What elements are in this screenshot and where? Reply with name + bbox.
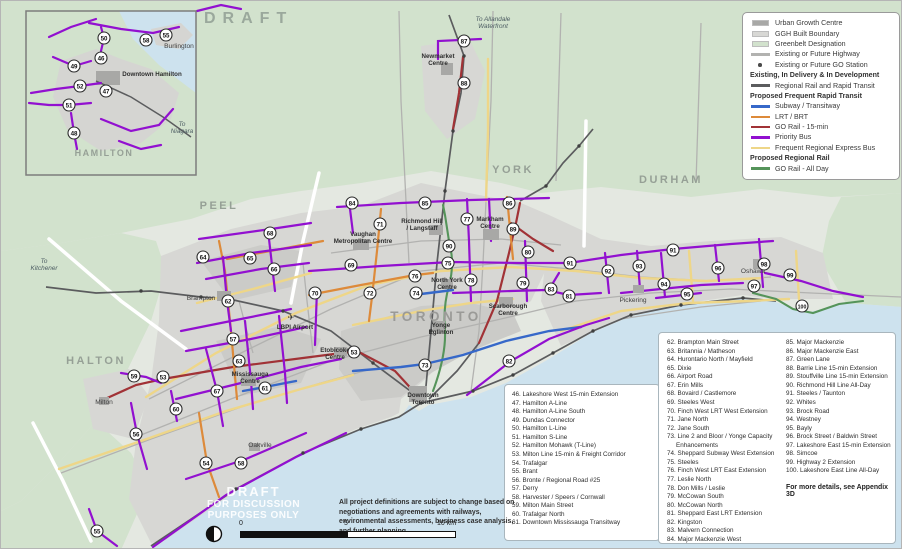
- map-label: Burlington: [164, 43, 194, 50]
- project-list-box-1: 46. Lakeshore West 15-min Extension47. H…: [504, 384, 660, 541]
- svg-text:66: 66: [271, 266, 278, 273]
- project-marker-81[interactable]: 81: [563, 290, 575, 302]
- project-marker-82[interactable]: 82: [503, 355, 515, 367]
- svg-text:88: 88: [461, 80, 468, 87]
- project-marker-96[interactable]: 96: [712, 262, 724, 274]
- map-legend: Urban Growth CentreGGH Built BoundaryGre…: [742, 12, 900, 180]
- legend-label: Urban Growth Centre: [775, 19, 842, 27]
- legend-row: Greenbelt Designation: [750, 39, 893, 49]
- project-marker-79[interactable]: 79: [517, 277, 529, 289]
- svg-text:58: 58: [143, 37, 150, 44]
- svg-text:70: 70: [312, 290, 319, 297]
- legend-key-dot: [750, 63, 770, 67]
- svg-text:48: 48: [71, 130, 78, 137]
- svg-text:86: 86: [506, 200, 513, 207]
- project-marker-49[interactable]: 49: [68, 60, 80, 72]
- project-marker-83[interactable]: 83: [545, 283, 557, 295]
- map-label: Downtown Hamilton: [122, 71, 182, 78]
- svg-text:47: 47: [103, 88, 110, 95]
- legend-label: Existing or Future GO Station: [775, 61, 868, 69]
- list-item: 48. Hamilton A-Line South: [512, 408, 655, 417]
- legend-label: Priority Bus: [775, 133, 811, 141]
- map-label: YORK: [492, 164, 534, 176]
- map-label: ✈: [288, 313, 295, 322]
- svg-text:81: 81: [566, 293, 573, 300]
- project-list-box-2: 62. Brampton Main Street63. Britannia / …: [658, 332, 896, 544]
- svg-text:68: 68: [267, 230, 274, 237]
- svg-text:74: 74: [413, 290, 420, 297]
- project-marker-86[interactable]: 86: [503, 197, 515, 209]
- list-item: 50. Hamilton L-Line: [512, 425, 655, 434]
- project-list-85-100: 85. Major Mackenzie86. Major Mackenzie E…: [786, 339, 891, 539]
- list-item: 89. Stouffville Line 15-min Extension: [786, 373, 891, 382]
- legend-symbol: [752, 41, 769, 47]
- project-marker-66[interactable]: 66: [268, 263, 280, 275]
- north-arrow-icon: [205, 525, 223, 543]
- svg-text:100: 100: [798, 304, 807, 310]
- legend-symbol: [752, 31, 769, 37]
- svg-text:55: 55: [163, 32, 170, 39]
- legend-section-header: Proposed Regional Rail: [750, 153, 893, 163]
- list-item: 65. Dixie: [667, 365, 781, 374]
- svg-text:53: 53: [160, 374, 167, 381]
- legend-row: GGH Built Boundary: [750, 28, 893, 38]
- list-item: 86. Major Mackenzie East: [786, 348, 891, 357]
- project-marker-76[interactable]: 76: [409, 270, 421, 282]
- legend-key-line: [750, 116, 770, 118]
- legend-symbol: [751, 53, 770, 55]
- svg-text:96: 96: [715, 265, 722, 272]
- legend-key-swatch: [750, 41, 770, 47]
- list-item: 96. Brock Street / Baldwin Street: [786, 433, 891, 442]
- more-details-note: For more details, see Appendix 3D: [786, 484, 891, 498]
- project-marker-99[interactable]: 99: [784, 269, 796, 281]
- legend-label: GO Rail - 15-min: [775, 123, 828, 131]
- scale-bar-group: 0 5 10 km: [197, 517, 467, 547]
- list-item: 73. Line 2 and Bloor / Yonge Capacity En…: [667, 433, 781, 450]
- project-marker-92[interactable]: 92: [602, 265, 614, 277]
- legend-symbol: [751, 126, 770, 128]
- project-marker-71[interactable]: 71: [374, 218, 386, 230]
- legend-section-header: Existing, In Delivery & In Development: [750, 70, 893, 80]
- scale-bar: [240, 531, 456, 538]
- map-label: Milton: [95, 399, 113, 406]
- legend-key-line: [750, 136, 770, 138]
- list-item: 57. Derry: [512, 485, 655, 494]
- list-item: 49. Dundas Connector: [512, 417, 655, 426]
- project-marker-64[interactable]: 64: [197, 251, 209, 263]
- svg-text:83: 83: [548, 286, 555, 293]
- project-list-46-61: 46. Lakeshore West 15-min Extension47. H…: [512, 391, 655, 528]
- legend-row: Subway / Transitway: [750, 101, 893, 111]
- project-marker-55[interactable]: 55: [91, 525, 103, 537]
- svg-text:93: 93: [636, 263, 643, 270]
- svg-text:53: 53: [351, 349, 358, 356]
- project-marker-90[interactable]: 90: [443, 240, 455, 252]
- draft-label: DRAFT: [204, 10, 293, 28]
- map-label: Brampton: [187, 295, 216, 302]
- project-marker-89[interactable]: 89: [507, 223, 519, 235]
- list-item: 71. Jane North: [667, 416, 781, 425]
- project-marker-56[interactable]: 56: [130, 428, 142, 440]
- project-marker-65[interactable]: 65: [244, 252, 256, 264]
- map-label: Pickering: [619, 297, 646, 304]
- list-item: 77. Leslie North: [667, 476, 781, 485]
- project-marker-48[interactable]: 48: [68, 127, 80, 139]
- legend-label: Greenbelt Designation: [775, 40, 846, 48]
- legend-row: Regional Rail and Rapid Transit: [750, 80, 893, 90]
- svg-text:98: 98: [761, 261, 768, 268]
- svg-text:59: 59: [131, 373, 138, 380]
- svg-text:91: 91: [670, 247, 677, 254]
- svg-text:63: 63: [236, 358, 243, 365]
- project-marker-63[interactable]: 63: [233, 355, 245, 367]
- svg-text:61: 61: [262, 385, 269, 392]
- map-label: YongeEglinton: [429, 322, 454, 336]
- svg-text:64: 64: [200, 254, 207, 261]
- legend-symbol: [751, 116, 770, 118]
- list-item: 46. Lakeshore West 15-min Extension: [512, 391, 655, 400]
- list-item: 90. Richmond Hill Line All-Day: [786, 382, 891, 391]
- project-marker-91[interactable]: 91: [667, 244, 679, 256]
- svg-text:84: 84: [349, 200, 356, 207]
- legend-header-text: Proposed Frequent Rapid Transit: [750, 92, 862, 100]
- svg-text:71: 71: [377, 221, 384, 228]
- list-item: 70. Finch West LRT West Extension: [667, 408, 781, 417]
- svg-text:85: 85: [422, 200, 429, 207]
- list-item: 88. Barrie Line 15-min Extension: [786, 365, 891, 374]
- project-marker-85[interactable]: 85: [419, 197, 431, 209]
- transit-map-page: PEELYORKDURHAMHALTONTORONTOHAMILTONTo Al…: [0, 0, 902, 549]
- svg-text:97: 97: [751, 283, 758, 290]
- svg-text:76: 76: [412, 273, 419, 280]
- svg-text:46: 46: [98, 55, 105, 62]
- svg-text:99: 99: [787, 272, 794, 279]
- project-list-62-84: 62. Brampton Main Street63. Britannia / …: [667, 339, 781, 539]
- list-item: 94. Westney: [786, 416, 891, 425]
- list-item: 67. Erin Mills: [667, 382, 781, 391]
- list-item: 53. Milton Line 15-min & Freight Corrido…: [512, 451, 655, 460]
- list-item: 59. Milton Main Street: [512, 502, 655, 511]
- map-label: DowntownToronto: [407, 392, 438, 406]
- project-marker-69[interactable]: 69: [345, 259, 357, 271]
- project-marker-97[interactable]: 97: [748, 280, 760, 292]
- legend-row: Existing or Future Highway: [750, 49, 893, 59]
- scale-labels: 0 5 10 km: [239, 520, 461, 529]
- list-item: 87. Green Lane: [786, 356, 891, 365]
- svg-text:94: 94: [661, 281, 668, 288]
- project-marker-70[interactable]: 70: [309, 287, 321, 299]
- project-marker-78[interactable]: 78: [465, 274, 477, 286]
- list-item: 92. Whites: [786, 399, 891, 408]
- legend-header-text: Proposed Regional Rail: [750, 154, 830, 162]
- map-label: LBPI Airport: [277, 324, 313, 331]
- map-label: Richmond Hill/ Langstaff: [401, 218, 443, 232]
- legend-symbol: [752, 20, 769, 26]
- project-marker-74[interactable]: 74: [410, 287, 422, 299]
- legend-label: GGH Built Boundary: [775, 30, 839, 38]
- list-item: 78. Don Mills / Leslie: [667, 485, 781, 494]
- svg-text:60: 60: [173, 406, 180, 413]
- legend-label: Subway / Transitway: [775, 102, 840, 110]
- legend-label: Frequent Regional Express Bus: [775, 144, 875, 152]
- legend-symbol: [751, 136, 770, 138]
- project-marker-75[interactable]: 75: [442, 257, 454, 269]
- project-marker-67[interactable]: 67: [211, 385, 223, 397]
- project-marker-58[interactable]: 58: [140, 34, 152, 46]
- project-marker-84[interactable]: 84: [346, 197, 358, 209]
- list-item: 69. Steeles West: [667, 399, 781, 408]
- project-marker-53[interactable]: 53: [157, 371, 169, 383]
- svg-text:58: 58: [238, 460, 245, 467]
- map-label: HAMILTON: [75, 148, 134, 158]
- list-item: 83. Malvern Connection: [667, 527, 781, 536]
- legend-row: Existing or Future GO Station: [750, 60, 893, 70]
- legend-row: Priority Bus: [750, 132, 893, 142]
- list-item: 95. Bayly: [786, 425, 891, 434]
- project-marker-53[interactable]: 53: [348, 346, 360, 358]
- legend-key-line: [750, 167, 770, 169]
- legend-label: Existing or Future Highway: [775, 50, 860, 58]
- svg-text:56: 56: [133, 431, 140, 438]
- list-item: 62. Brampton Main Street: [667, 339, 781, 348]
- scale-segment-light: [348, 532, 455, 537]
- legend-row: GO Rail - All Day: [750, 163, 893, 173]
- map-label: PEEL: [200, 200, 239, 212]
- project-marker-98[interactable]: 98: [758, 258, 770, 270]
- list-item: 56. Bronte / Regional Road #25: [512, 477, 655, 486]
- scale-five: 5: [344, 520, 348, 527]
- list-item: 63. Britannia / Matheson: [667, 348, 781, 357]
- legend-key-line: [750, 126, 770, 128]
- list-item: 97. Lakeshore East 15-min Extension: [786, 442, 891, 451]
- project-marker-50[interactable]: 50: [98, 32, 110, 44]
- list-item: 74. Sheppard Subway West Extension: [667, 450, 781, 459]
- list-item: 47. Hamilton A-Line: [512, 400, 655, 409]
- svg-text:72: 72: [367, 290, 374, 297]
- list-item: 80. McCowan North: [667, 502, 781, 511]
- svg-text:54: 54: [203, 460, 210, 467]
- project-marker-59[interactable]: 59: [128, 370, 140, 382]
- svg-text:89: 89: [510, 226, 517, 233]
- svg-text:75: 75: [445, 260, 452, 267]
- project-marker-95[interactable]: 95: [681, 288, 693, 300]
- svg-text:52: 52: [77, 83, 84, 90]
- project-marker-57[interactable]: 57: [227, 333, 239, 345]
- svg-text:51: 51: [66, 102, 73, 109]
- legend-section-header: Proposed Frequent Rapid Transit: [750, 91, 893, 101]
- list-item: 54. Trafalgar: [512, 460, 655, 469]
- svg-text:62: 62: [225, 298, 232, 305]
- svg-text:78: 78: [468, 277, 475, 284]
- project-marker-46[interactable]: 46: [95, 52, 107, 64]
- project-marker-93[interactable]: 93: [633, 260, 645, 272]
- legend-symbol: [751, 147, 770, 149]
- list-item: 84. Major Mackenzie West: [667, 536, 781, 545]
- discussion-watermark: DRAFT FOR DISCUSSION PURPOSES ONLY: [191, 485, 316, 521]
- list-item: 82. Kingston: [667, 519, 781, 528]
- list-item: 72. Jane South: [667, 425, 781, 434]
- project-marker-91[interactable]: 91: [564, 257, 576, 269]
- project-marker-62[interactable]: 62: [222, 295, 234, 307]
- legend-key-line: [750, 84, 770, 86]
- legend-row: LRT / BRT: [750, 112, 893, 122]
- list-item: 55. Brant: [512, 468, 655, 477]
- svg-text:65: 65: [247, 255, 254, 262]
- legend-label: LRT / BRT: [775, 113, 808, 121]
- legend-symbol: [758, 63, 762, 67]
- list-item: 81. Sheppard East LRT Extension: [667, 510, 781, 519]
- list-item: 66. Airport Road: [667, 373, 781, 382]
- svg-text:57: 57: [230, 336, 237, 343]
- svg-text:87: 87: [461, 38, 468, 45]
- svg-text:49: 49: [71, 63, 78, 70]
- legend-symbol: [751, 105, 770, 107]
- project-marker-68[interactable]: 68: [264, 227, 276, 239]
- project-marker-77[interactable]: 77: [461, 213, 473, 225]
- project-marker-80[interactable]: 80: [522, 246, 534, 258]
- project-marker-100[interactable]: 100: [796, 300, 808, 312]
- project-marker-61[interactable]: 61: [259, 382, 271, 394]
- svg-text:82: 82: [506, 358, 513, 365]
- svg-text:69: 69: [348, 262, 355, 269]
- legend-label: Regional Rail and Rapid Transit: [775, 82, 875, 90]
- project-marker-60[interactable]: 60: [170, 403, 182, 415]
- legend-header-text: Existing, In Delivery & In Development: [750, 71, 879, 79]
- svg-text:67: 67: [214, 388, 221, 395]
- list-item: 98. Simcoe: [786, 450, 891, 459]
- list-item: 64. Hurontario North / Mayfield: [667, 356, 781, 365]
- legend-label: GO Rail - All Day: [775, 165, 829, 173]
- legend-row: GO Rail - 15-min: [750, 122, 893, 132]
- project-marker-94[interactable]: 94: [658, 278, 670, 290]
- list-item: 100. Lakeshore East Line All-Day: [786, 467, 891, 476]
- list-item: 51. Hamilton S-Line: [512, 434, 655, 443]
- svg-text:95: 95: [684, 291, 691, 298]
- watermark-line: FOR DISCUSSION: [191, 499, 316, 510]
- legend-symbol: [751, 167, 770, 169]
- list-item: 76. Finch West LRT East Extension: [667, 467, 781, 476]
- map-label: Oakville: [248, 442, 272, 449]
- project-marker-52[interactable]: 52: [74, 80, 86, 92]
- project-marker-88[interactable]: 88: [458, 77, 470, 89]
- legend-row: Frequent Regional Express Bus: [750, 143, 893, 153]
- project-marker-47[interactable]: 47: [100, 85, 112, 97]
- legend-row: Urban Growth Centre: [750, 18, 893, 28]
- list-item: 61. Downtown Mississauga Transitway: [512, 519, 655, 528]
- map-label: HALTON: [66, 355, 126, 367]
- svg-text:73: 73: [422, 362, 429, 369]
- list-item: 85. Major Mackenzie: [786, 339, 891, 348]
- legend-key-line: [750, 105, 770, 107]
- scale-ten: 10 km: [437, 520, 456, 527]
- svg-text:91: 91: [567, 260, 574, 267]
- list-item: 60. Trafalgar North: [512, 511, 655, 520]
- project-marker-72[interactable]: 72: [364, 287, 376, 299]
- list-item: 93. Brock Road: [786, 408, 891, 417]
- list-item: 75. Steeles: [667, 459, 781, 468]
- project-marker-55[interactable]: 55: [160, 29, 172, 41]
- scale-zero: 0: [239, 520, 243, 527]
- project-marker-58[interactable]: 58: [235, 457, 247, 469]
- legend-symbol: [751, 84, 770, 86]
- svg-text:79: 79: [520, 280, 527, 287]
- list-item: 52. Hamilton Mohawk (T-Line): [512, 442, 655, 451]
- svg-text:55: 55: [94, 528, 101, 535]
- list-item: 91. Steeles / Taunton: [786, 390, 891, 399]
- svg-text:90: 90: [446, 243, 453, 250]
- project-marker-51[interactable]: 51: [63, 99, 75, 111]
- scale-segment-dark: [241, 532, 348, 537]
- project-marker-73[interactable]: 73: [419, 359, 431, 371]
- svg-text:77: 77: [464, 216, 471, 223]
- svg-text:92: 92: [605, 268, 612, 275]
- legend-key-swatch: [750, 20, 770, 26]
- svg-text:50: 50: [101, 35, 108, 42]
- list-item: 58. Harvester / Speers / Cornwall: [512, 494, 655, 503]
- legend-key-line: [750, 53, 770, 55]
- map-label: To AllandaleWaterfront: [476, 16, 511, 30]
- list-item: 68. Bovaird / Castlemore: [667, 390, 781, 399]
- project-marker-54[interactable]: 54: [200, 457, 212, 469]
- project-marker-87[interactable]: 87: [458, 35, 470, 47]
- watermark-line: DRAFT: [191, 485, 316, 499]
- list-item: 79. McCowan South: [667, 493, 781, 502]
- legend-key-swatch: [750, 31, 770, 37]
- svg-text:80: 80: [525, 249, 532, 256]
- legend-key-line: [750, 147, 770, 149]
- map-label: DURHAM: [639, 174, 703, 186]
- list-item: 99. Highway 2 Extension: [786, 459, 891, 468]
